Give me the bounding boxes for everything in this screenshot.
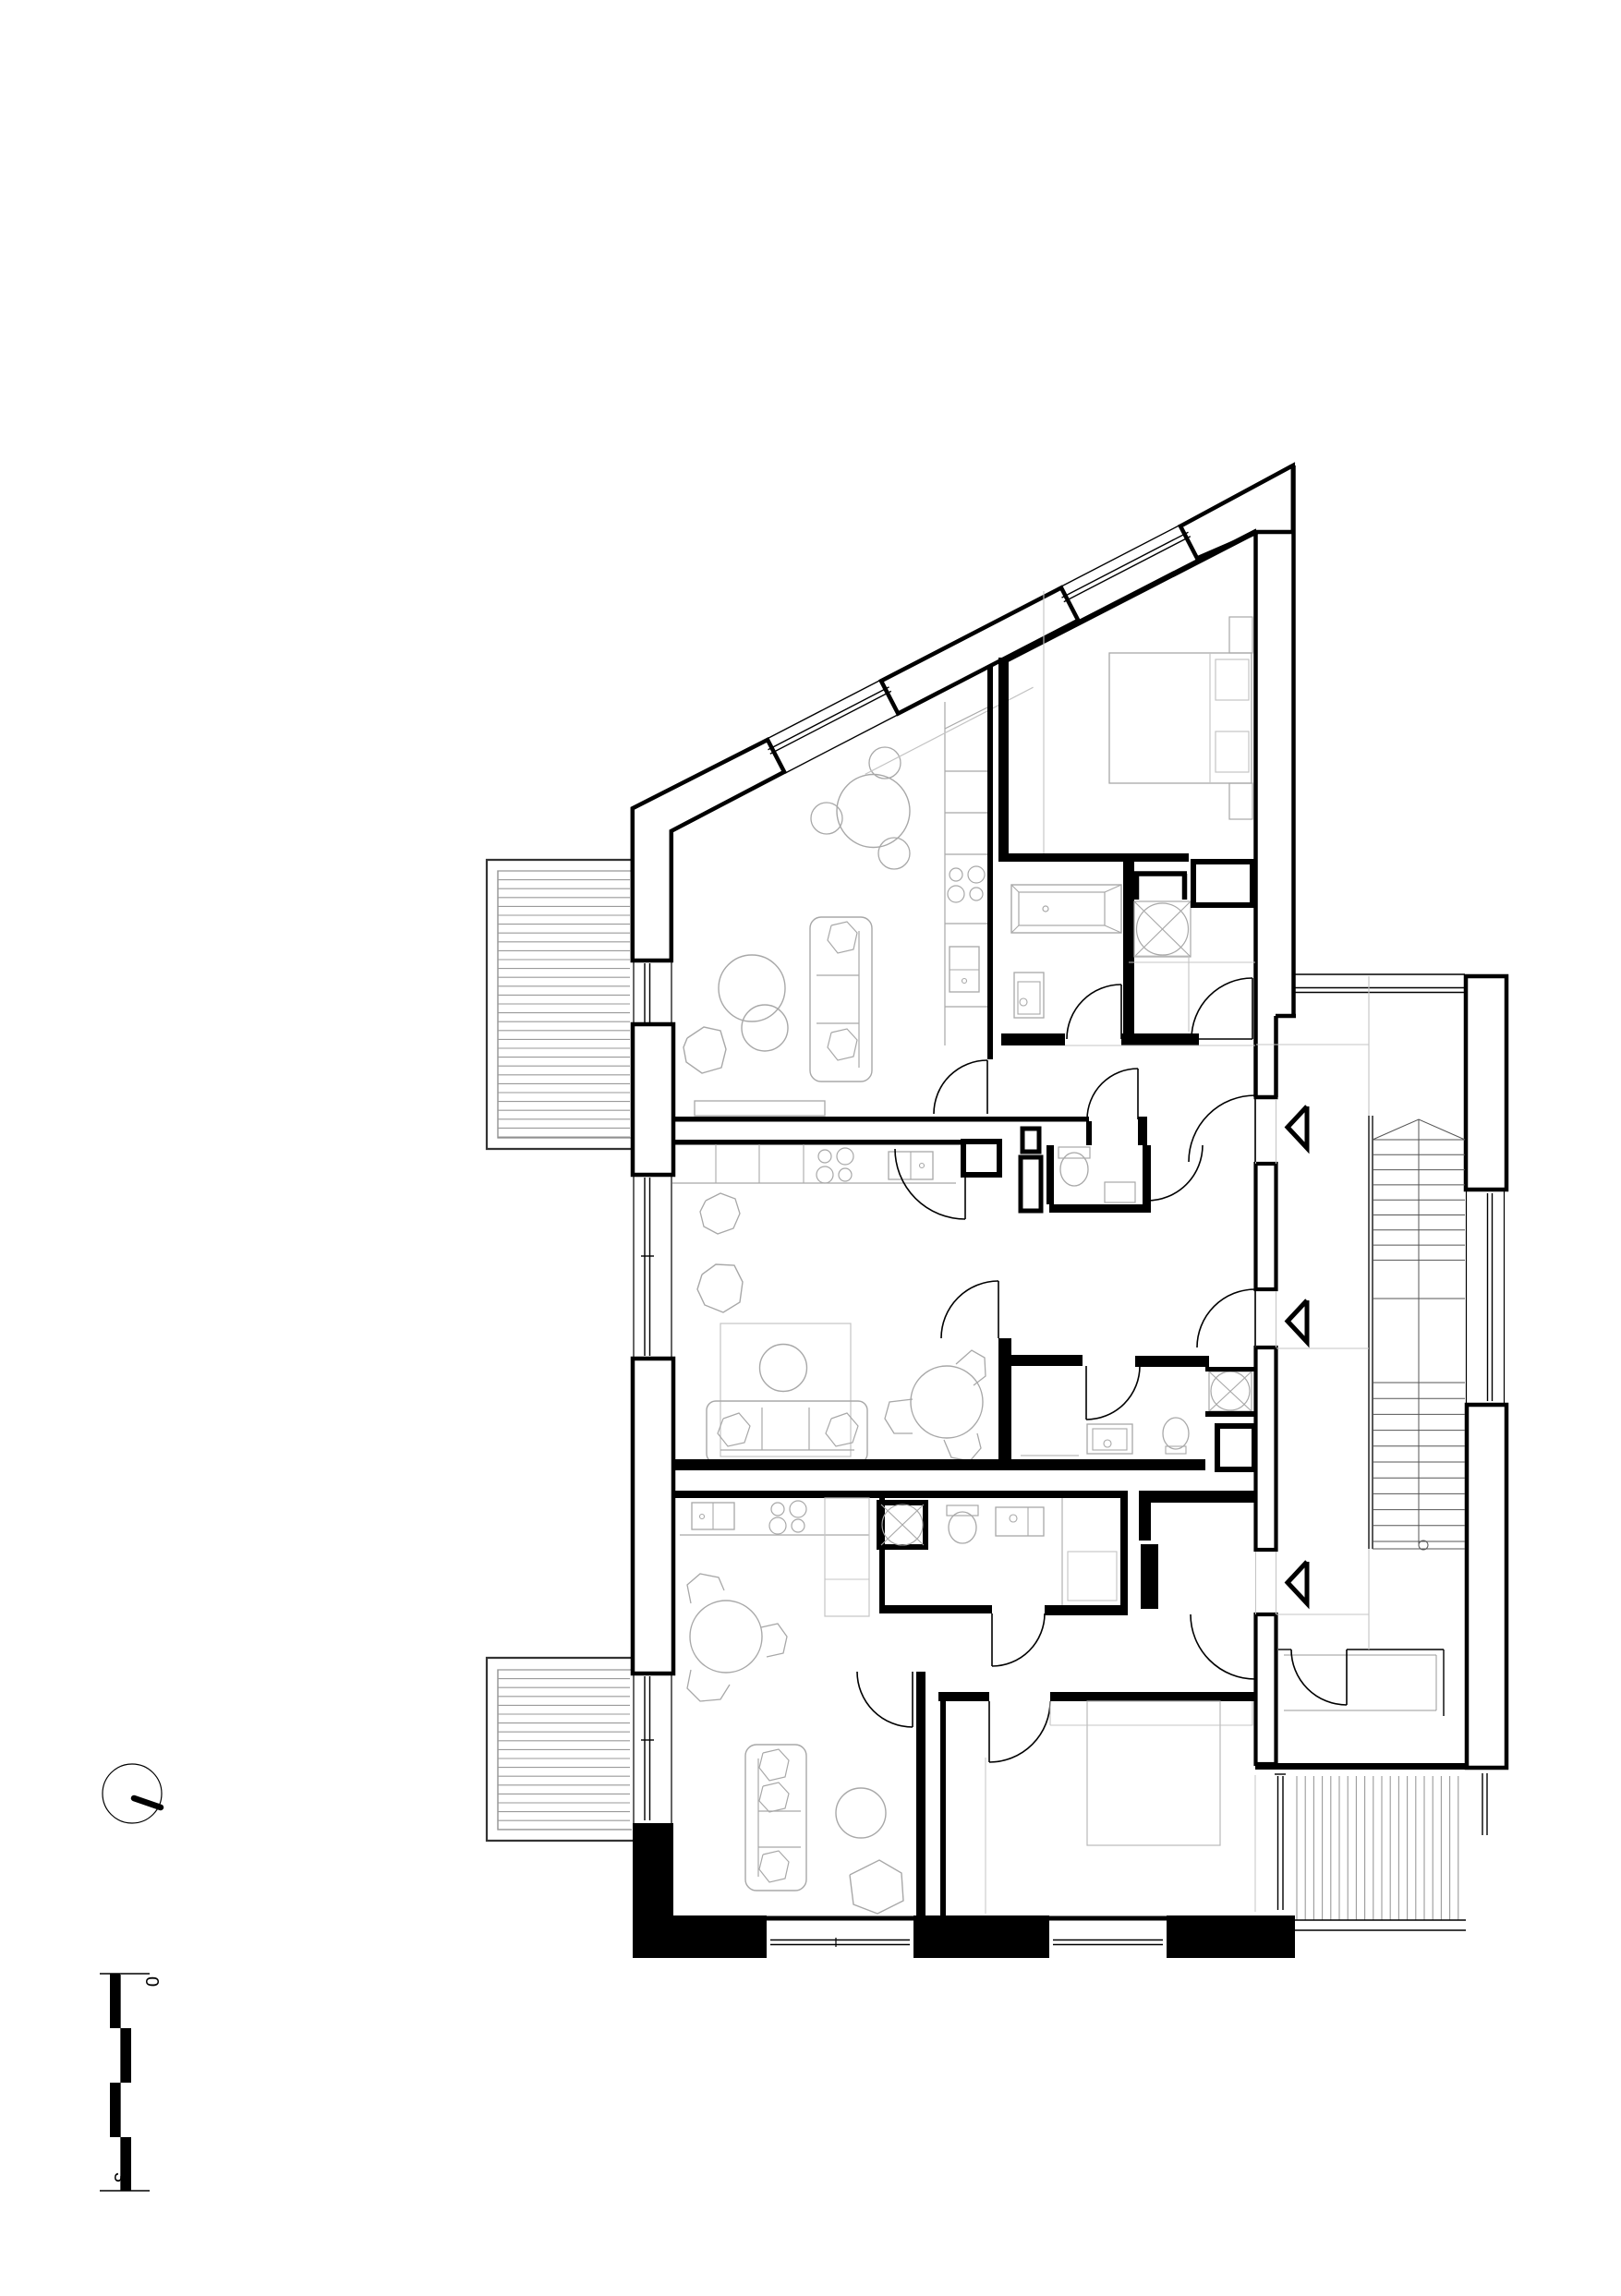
svg-text:0: 0: [141, 1976, 162, 1987]
svg-text:3: 3: [110, 2172, 130, 2182]
